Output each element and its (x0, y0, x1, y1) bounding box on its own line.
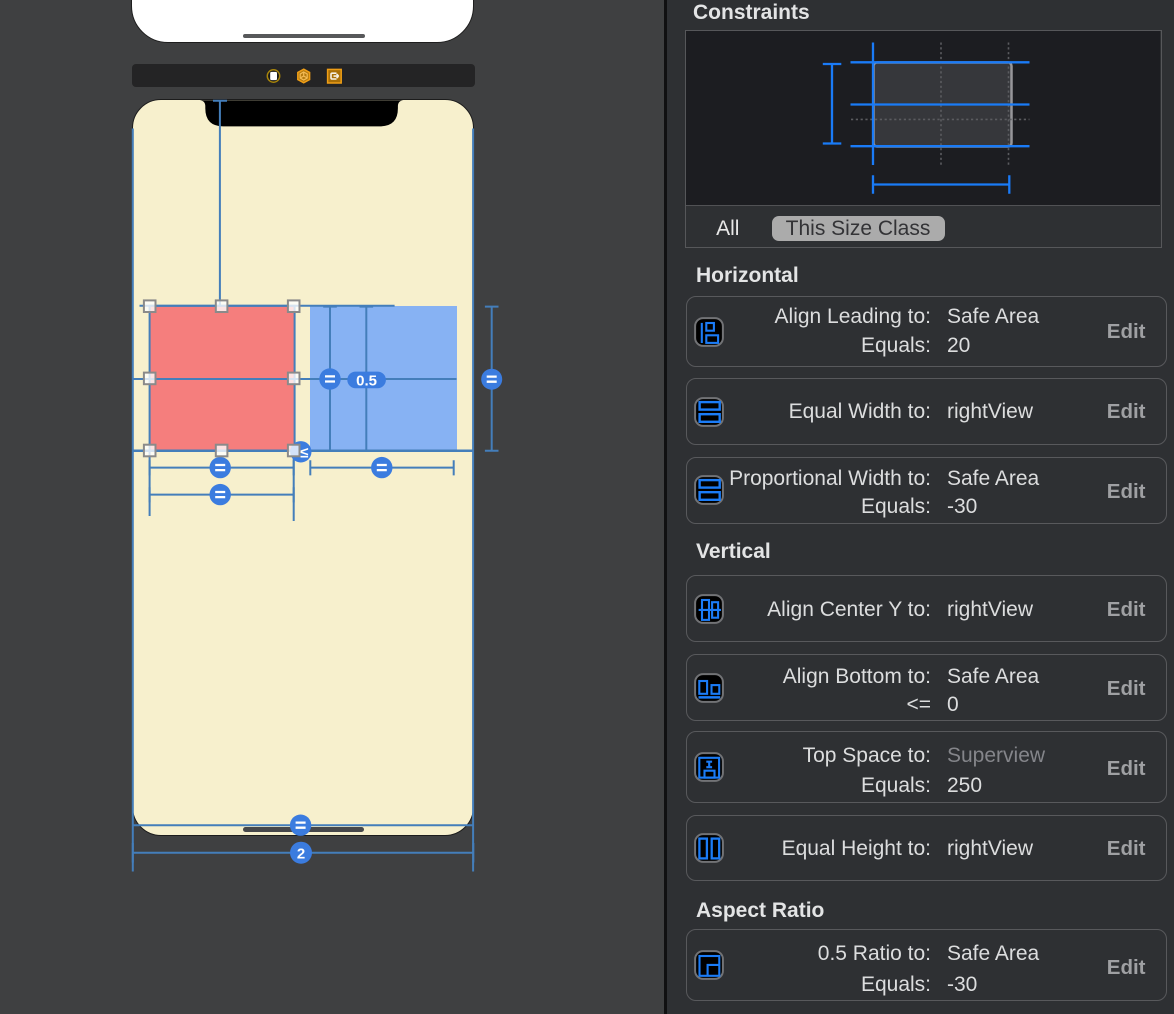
svg-text:≤: ≤ (300, 445, 308, 462)
svg-text:2: 2 (297, 845, 305, 862)
svg-text:0.5: 0.5 (356, 372, 377, 389)
